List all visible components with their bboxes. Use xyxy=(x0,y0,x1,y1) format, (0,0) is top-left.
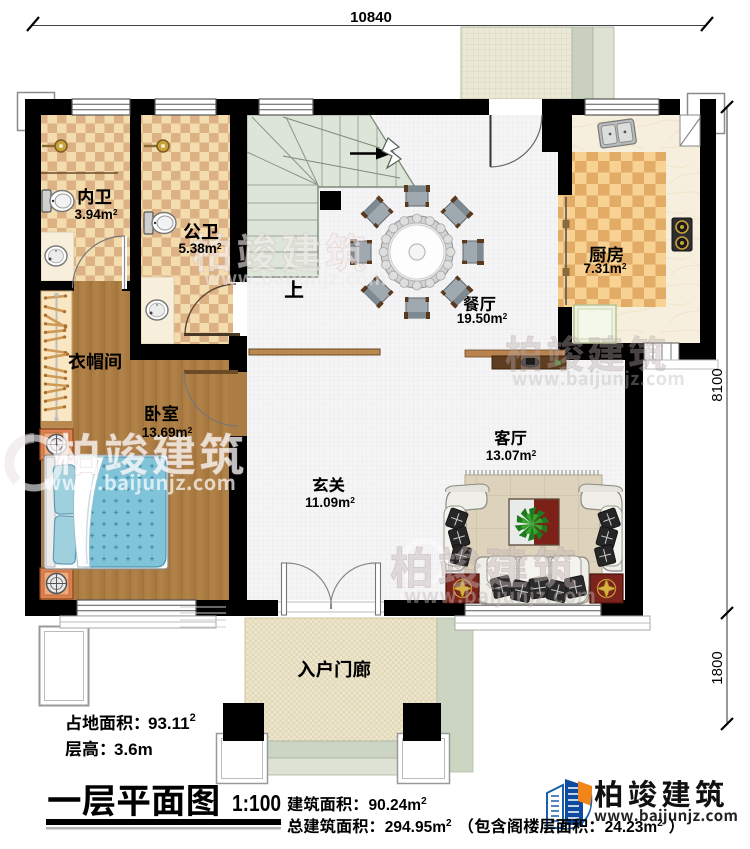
svg-text:3.94m2: 3.94m2 xyxy=(75,207,118,222)
svg-text:93.112: 93.112 xyxy=(148,712,196,733)
svg-text:8100: 8100 xyxy=(709,368,726,401)
svg-text:294.95m2: 294.95m2 xyxy=(385,818,452,836)
svg-text:24.23m2: 24.23m2 xyxy=(605,818,664,836)
svg-text:90.24m2: 90.24m2 xyxy=(369,796,428,814)
svg-text:11.09m2: 11.09m2 xyxy=(305,495,355,510)
svg-text:7.31m2: 7.31m2 xyxy=(584,261,627,276)
svg-text:3.6m: 3.6m xyxy=(114,740,153,759)
svg-text:19.50m2: 19.50m2 xyxy=(457,311,508,326)
svg-text:10840: 10840 xyxy=(350,9,392,26)
svg-text:1:100: 1:100 xyxy=(232,790,281,816)
svg-text:13.69m2: 13.69m2 xyxy=(142,425,193,440)
svg-text:1800: 1800 xyxy=(709,651,726,684)
svg-text:5.38m2: 5.38m2 xyxy=(179,241,222,256)
svg-text:13.07m2: 13.07m2 xyxy=(486,448,537,463)
